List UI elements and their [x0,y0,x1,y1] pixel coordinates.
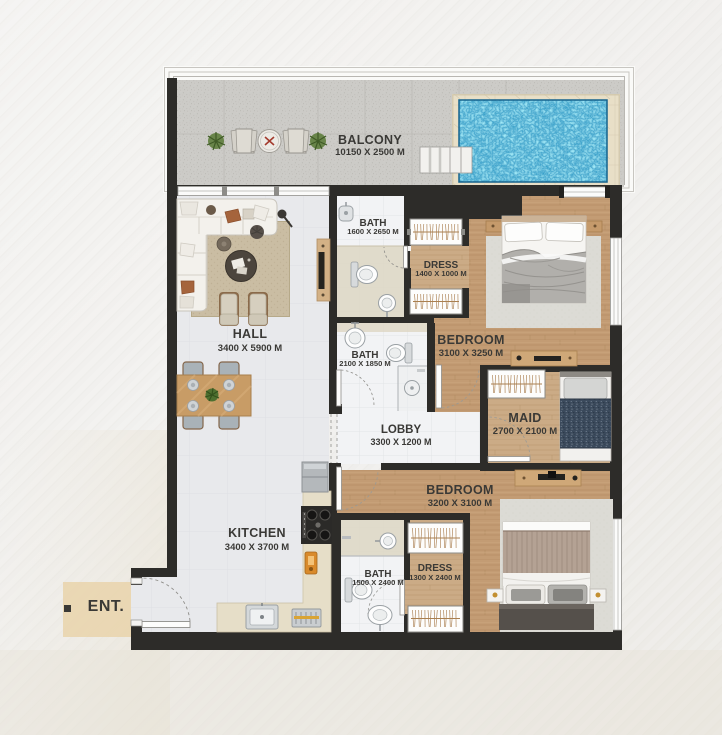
svg-text:3400 X 3700 M: 3400 X 3700 M [225,542,290,553]
svg-text:2100 X 1850 M: 2100 X 1850 M [339,359,391,368]
svg-text:10150 X 2500 M: 10150 X 2500 M [335,147,405,158]
svg-text:3400 X 5900 M: 3400 X 5900 M [218,343,283,354]
svg-text:HALL: HALL [233,327,268,341]
svg-text:3100 X 3250 M: 3100 X 3250 M [439,348,504,359]
svg-text:3200 X 3100 M: 3200 X 3100 M [428,498,493,509]
svg-text:KITCHEN: KITCHEN [228,526,286,540]
svg-text:1600 X 2650 M: 1600 X 2650 M [347,227,399,236]
svg-text:BEDROOM: BEDROOM [437,333,504,347]
svg-text:1500 X 2400 M: 1500 X 2400 M [352,578,404,587]
svg-text:BALCONY: BALCONY [338,133,402,147]
svg-text:BEDROOM: BEDROOM [426,483,493,497]
svg-text:3300 X 1200 M: 3300 X 1200 M [370,437,431,447]
svg-text:LOBBY: LOBBY [381,424,422,436]
svg-text:ENT.: ENT. [88,598,125,615]
svg-text:MAID: MAID [508,411,541,425]
svg-text:2700 X 2100 M: 2700 X 2100 M [493,426,558,437]
svg-text:1400 X 1000 M: 1400 X 1000 M [415,269,467,278]
svg-text:1300 X 2400 M: 1300 X 2400 M [409,573,461,582]
